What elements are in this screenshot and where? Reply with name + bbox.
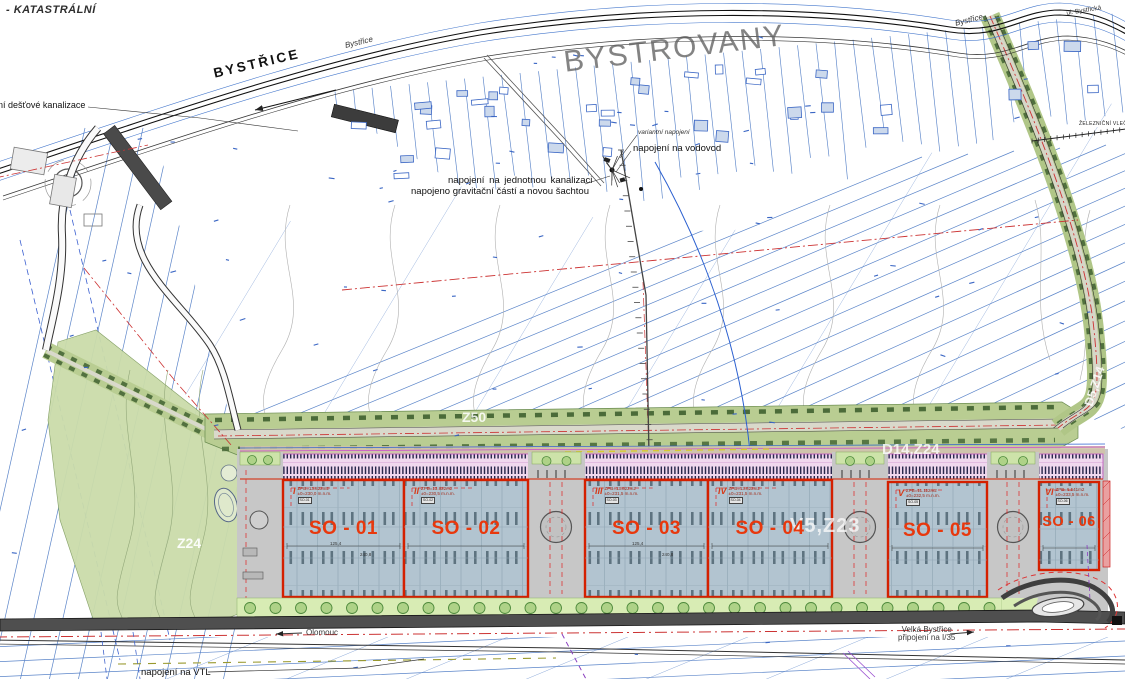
so-box-tag: SO-01 xyxy=(298,497,312,504)
south-road xyxy=(0,610,1125,664)
building-so-06-annotation: VI ZPB=6.541m2 ±0=233,5 m.n.m. SO-06 xyxy=(1045,487,1089,505)
elev-text: ±0=233,5 m.n.m. xyxy=(1056,492,1090,497)
roman-numeral: III xyxy=(595,486,603,496)
so-box-tag: SO-05 xyxy=(906,499,920,506)
building-so-03-label: SO - 03 xyxy=(585,518,708,540)
building-so-01: I ZPB=13.822m2 ±0=230,0 m.n.m. SO-01 SO … xyxy=(283,480,404,597)
railway-siding-label: ŽELEZNIČNÍ VLEČKA xyxy=(1078,121,1125,127)
roman-numeral: V xyxy=(898,488,904,498)
roman-numeral: IV xyxy=(718,486,727,496)
callout-variant-connection: variantní napojení xyxy=(638,129,690,136)
building-so-04-annotation: IV ZPB=13.822m2 ±0=231,5 m.n.m. SO-04 xyxy=(718,486,762,504)
building-so-02: II ZPB=13.822m2 ±0=230,5 m.n.m. SO-02 SO… xyxy=(404,480,528,597)
roman-numeral: VI xyxy=(1045,487,1054,497)
callout-vtl-connection: napojení na VTL xyxy=(141,667,211,678)
so-box-tag: SO-03 xyxy=(605,497,619,504)
elev-text: ±0=230,0 m.n.m. xyxy=(298,491,332,496)
direction-velka-line2: připojení na I/35 xyxy=(898,633,955,642)
river-and-roads xyxy=(0,3,1125,430)
so-box-tag: SO-02 xyxy=(421,497,435,504)
elev-text: ±0=232,5 m.n.m. xyxy=(906,493,940,498)
building-so-06-label: SO - 06 xyxy=(1039,514,1099,530)
green-corridor xyxy=(44,16,1104,456)
elev-text: ±0=231,5 m.n.m. xyxy=(729,491,763,496)
building-so-03: III ZPB=13.822m2 ±0=231,5 m.n.m. SO-03 S… xyxy=(585,480,708,597)
building-so-02-label: SO - 02 xyxy=(404,518,528,540)
elev-text: ±0=230,5 m.n.m. xyxy=(421,491,455,496)
so-box-tag: SO-04 xyxy=(729,497,743,504)
so-box-tag: SO-06 xyxy=(1056,498,1070,505)
zone-z24-label: Z24 xyxy=(177,535,201,551)
building-so-04-label: SO - 04 xyxy=(708,518,832,540)
dimension-text: 125,4 xyxy=(632,541,643,546)
roman-numeral: II xyxy=(414,486,419,496)
building-so-05: V ZPB=11.112m2 ±0=232,5 m.n.m. SO-05 SO … xyxy=(888,482,987,597)
building-so-01-annotation: I ZPB=13.822m2 ±0=230,0 m.n.m. SO-01 xyxy=(293,486,331,504)
note-destove-kanalizace: ní dešťové kanalizace xyxy=(0,100,85,110)
dimension-text: 240,8 xyxy=(662,552,673,557)
callout-sewer-connection-1: napojení na jednotnou kanalizaci xyxy=(448,175,592,186)
dimension-text: 125,4 xyxy=(330,541,341,546)
roman-numeral: I xyxy=(293,486,296,496)
dimension-text: 240,8 xyxy=(360,552,371,557)
building-so-01-label: SO - 01 xyxy=(283,518,404,540)
callout-water-connection: napojení na vodovod xyxy=(633,143,721,154)
note-katastralni: - KATASTRÁLNÍ xyxy=(6,4,96,16)
building-so-05-annotation: V ZPB=11.112m2 ±0=232,5 m.n.m. SO-05 xyxy=(898,488,940,506)
callout-sewer-connection-2: napojeno gravitační částí a novou šachto… xyxy=(411,186,589,197)
building-so-06: VI ZPB=6.541m2 ±0=233,5 m.n.m. SO-06 SO … xyxy=(1039,482,1099,570)
elev-text: ±0=231,5 m.n.m. xyxy=(605,491,639,496)
building-so-04: IV ZPB=13.822m2 ±0=231,5 m.n.m. SO-04 SO… xyxy=(708,480,832,597)
zone-z50-label: Z50 xyxy=(462,409,486,425)
contour-lines xyxy=(263,200,1090,438)
direction-olomouc: Olomouc xyxy=(306,628,338,637)
building-so-05-label: SO - 05 xyxy=(888,520,987,542)
road-d14-z24-label: D14,Z24 xyxy=(882,441,940,458)
building-so-03-annotation: III ZPB=13.822m2 ±0=231,5 m.n.m. SO-03 xyxy=(595,486,638,504)
site-plan: - KATASTRÁLNÍ ní dešťové kanalizace BYST… xyxy=(0,0,1125,679)
building-so-02-annotation: II ZPB=13.822m2 ±0=230,5 m.n.m. SO-02 xyxy=(414,486,455,504)
direction-velka-bystrice: Velká Bystřice připojení na I/35 xyxy=(898,626,955,642)
